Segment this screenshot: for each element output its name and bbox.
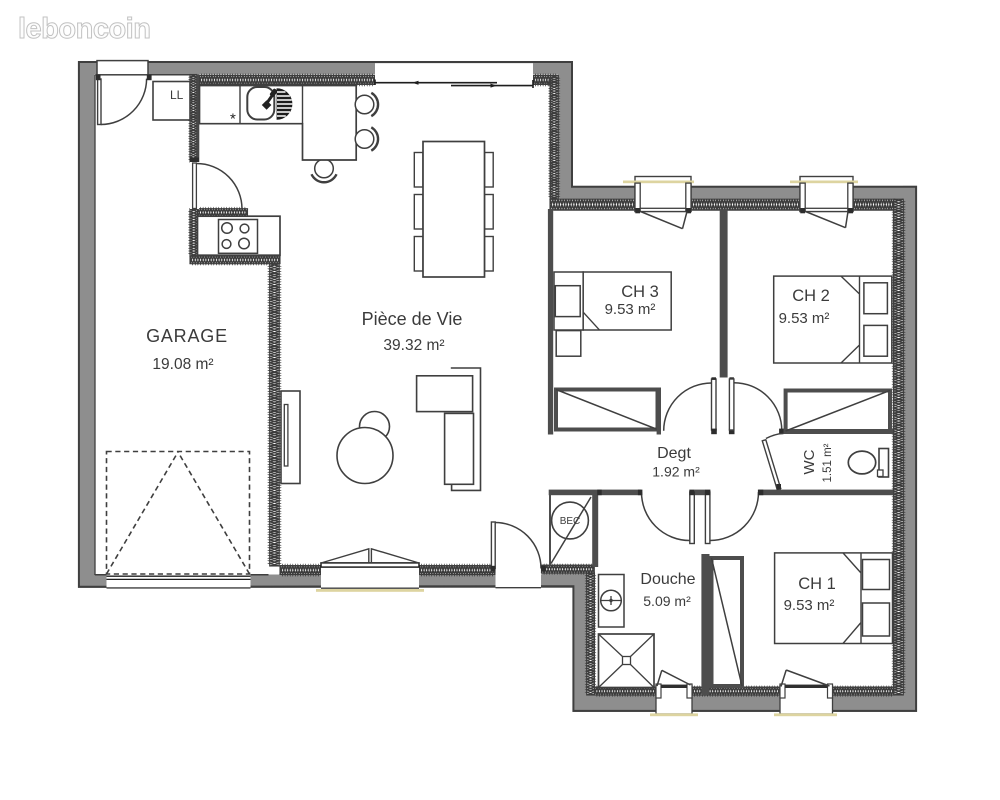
svg-text:1.51 m²: 1.51 m² (822, 443, 834, 482)
svg-text:Pièce de Vie: Pièce de Vie (362, 309, 463, 329)
svg-text:WC: WC (801, 449, 818, 474)
svg-text:Degt: Degt (657, 445, 691, 462)
svg-text:LL: LL (170, 88, 184, 102)
svg-text:1.92 m²: 1.92 m² (652, 464, 700, 480)
svg-text:leboncoin: leboncoin (18, 13, 150, 45)
svg-text:5.09 m²: 5.09 m² (643, 593, 691, 609)
svg-text:39.32 m²: 39.32 m² (383, 337, 444, 354)
svg-text:*: * (230, 111, 236, 128)
svg-text:Douche: Douche (640, 571, 695, 588)
svg-text:9.53 m²: 9.53 m² (779, 310, 830, 327)
svg-text:CH 1: CH 1 (798, 575, 836, 593)
svg-text:GARAGE: GARAGE (146, 326, 228, 346)
svg-text:CH 3: CH 3 (621, 283, 659, 301)
svg-text:BEC: BEC (560, 516, 581, 527)
svg-text:19.08 m²: 19.08 m² (152, 356, 213, 373)
svg-text:CH 2: CH 2 (792, 287, 830, 305)
svg-text:9.53 m²: 9.53 m² (605, 301, 656, 318)
svg-text:9.53 m²: 9.53 m² (784, 597, 835, 614)
